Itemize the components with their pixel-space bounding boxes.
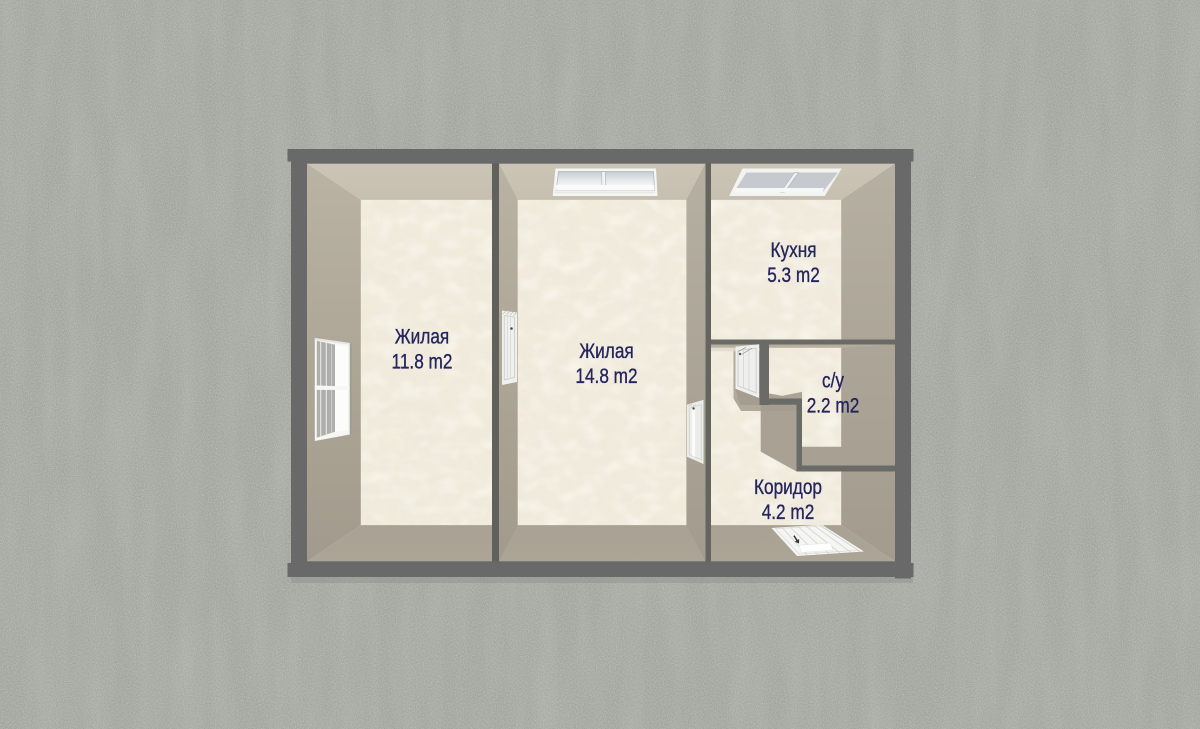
svg-text:Жилая: Жилая <box>395 326 449 349</box>
svg-text:11.8 m2: 11.8 m2 <box>392 351 453 374</box>
svg-text:Коридор: Коридор <box>754 477 822 500</box>
svg-text:с/у: с/у <box>822 370 844 393</box>
svg-text:4.2 m2: 4.2 m2 <box>762 502 815 525</box>
svg-text:Кухня: Кухня <box>770 240 816 263</box>
svg-text:14.8 m2: 14.8 m2 <box>575 366 637 389</box>
svg-text:2.2 m2: 2.2 m2 <box>807 395 860 418</box>
svg-text:5.3 m2: 5.3 m2 <box>767 265 820 288</box>
svg-text:Жилая: Жилая <box>579 341 633 364</box>
